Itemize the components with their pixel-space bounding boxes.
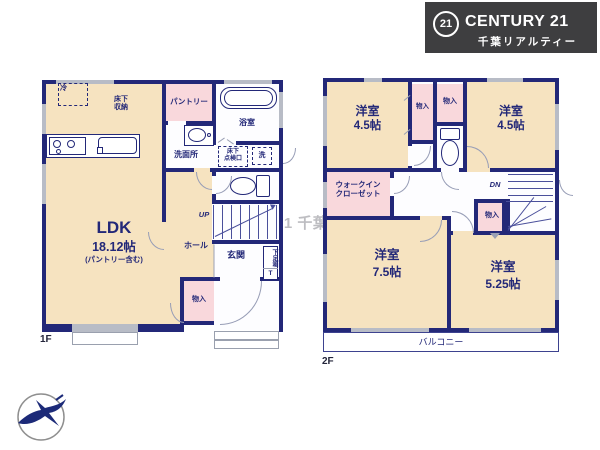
agency-bird-logo-icon [14,388,68,444]
ldk-note-label: (パントリー含む) [58,255,170,264]
floor-label-1f: 1F [40,334,52,346]
tap-icon [207,133,211,137]
ldk-label: LDK [64,218,164,238]
door-opening [408,146,412,166]
porch-step [214,331,279,340]
window-mark [487,78,523,82]
fridge-label: 冷 [60,85,67,93]
porch-step [214,340,279,349]
window-mark [42,104,46,134]
shoe-box-divider [263,268,278,269]
toilet-tank-icon [256,175,270,197]
deck-outline [72,332,138,345]
shoe-box-label: 下足箱 [264,248,277,268]
faucet-icon [97,147,103,154]
bedroom1-size: 4.5帖 [327,120,408,134]
bath-label: 浴室 [230,118,264,128]
window-mark [224,80,272,84]
closet-door-mark [490,233,500,239]
washroom-label: 洗面所 [166,150,206,160]
kitchen-sink-icon [98,137,137,154]
floor-hatch-label: 床下 点検口 [219,149,247,163]
brand-name: CENTURY 21 [465,13,569,31]
window-mark [555,104,559,150]
floor-label-2f: 2F [322,356,334,368]
burner-icon [53,140,61,148]
bedroom3-label: 洋室 [327,248,447,263]
wall [212,240,279,244]
window-mark [279,92,283,128]
floorplan-image: 21 CENTURY 21 千葉リアルティー センチュリー21 千葉リアルティー [0,0,600,450]
brand-logo: 21 CENTURY 21 千葉リアルティー [425,2,597,53]
laundry-label: 洗 [252,152,272,160]
window-mark [364,78,382,82]
toilet-bowl-icon [441,140,459,166]
floor-storage-label: 床下 収納 [104,96,138,113]
window-mark [323,182,327,208]
wall [412,140,433,144]
window-mark [72,324,138,332]
closet3-label: 物入 [478,212,506,220]
window-mark [42,164,46,204]
balcony-label: バルコニー [323,337,559,348]
door-opening [467,168,490,172]
wic-label: ウォークイン クローゼット [328,180,388,198]
entry-label: 玄関 [220,250,252,261]
wall [437,122,463,126]
burner-icon [56,149,61,154]
window-mark [555,260,559,300]
bedroom2-label: 洋室 [467,104,555,118]
wall [180,321,214,325]
bedroom3-size: 7.5帖 [327,265,447,279]
brand-subtitle: 千葉リアルティー [465,34,590,49]
window-arc [559,180,573,196]
bedroom4-size: 5.25帖 [451,277,555,291]
toilet-tank-icon [440,128,460,140]
back-door-arc [283,148,296,164]
closet1-floor [412,84,433,140]
closet2-label: 物入 [437,98,463,106]
wall [433,82,437,172]
closet1-label: 物入 [412,103,433,111]
toilet-bowl-icon [230,177,256,195]
dn-label: DN [486,180,504,189]
hall-label: ホール [178,241,214,251]
closet-label-1f: 物入 [184,296,214,304]
bedroom1-label: 洋室 [327,104,408,118]
up-label: UP [196,210,212,219]
wall [212,200,279,204]
burner-icon [67,140,75,148]
basin-bowl-icon [188,128,206,142]
pantry-label: パントリー [166,97,212,106]
stairs-2f [508,174,553,201]
bedroom2-size: 4.5帖 [467,120,555,134]
bedroom4-label: 洋室 [451,260,555,275]
century21-seal-icon: 21 [433,11,459,37]
wall [162,168,279,172]
shoe-box-t-label: T [263,270,278,278]
bathtub-inner [224,90,273,106]
ldk-size-label: 18.12帖 [64,240,164,255]
